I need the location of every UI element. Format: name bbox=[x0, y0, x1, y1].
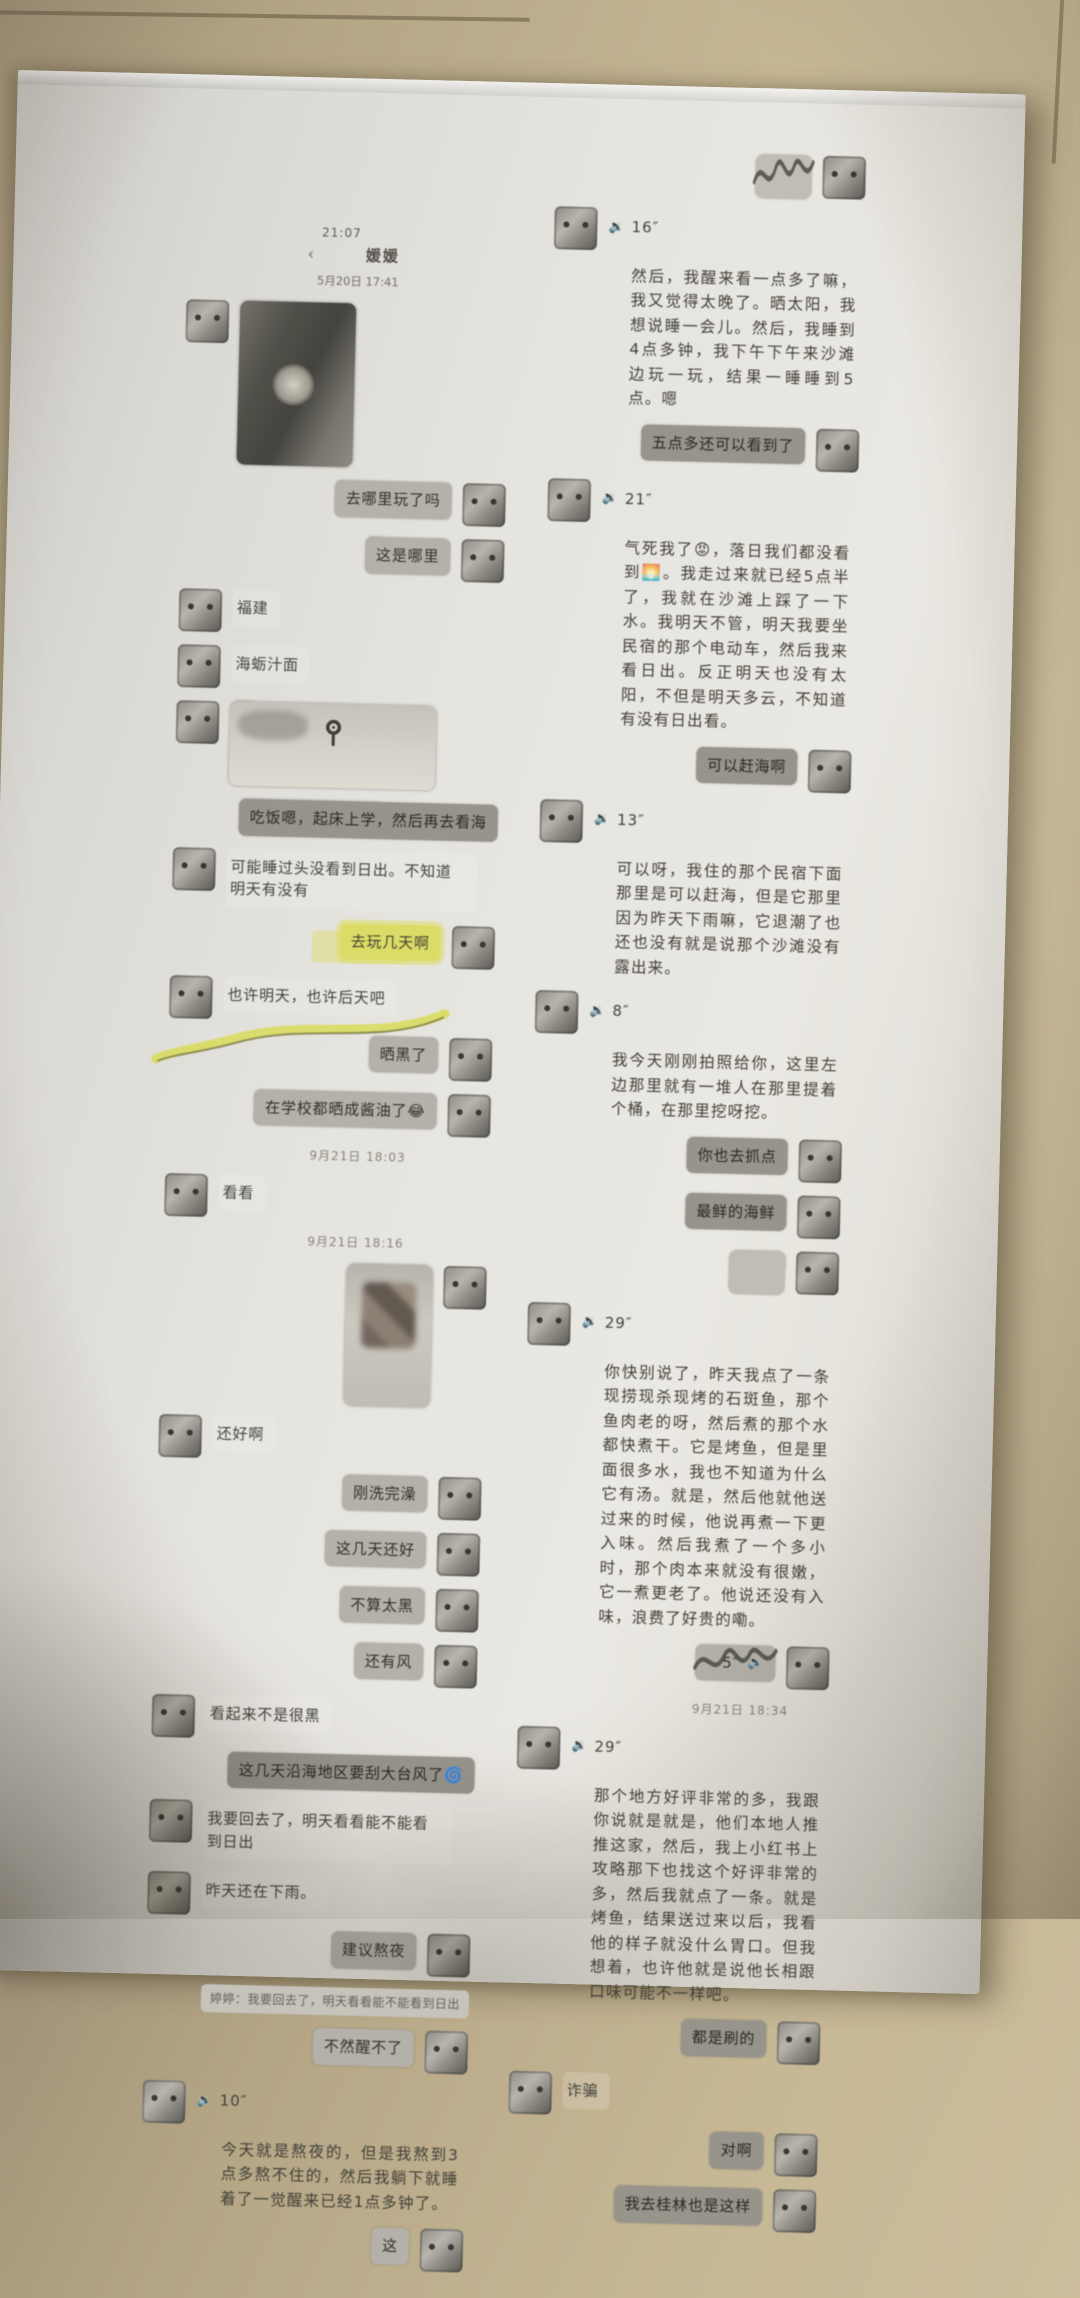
message-row: 不算太黑 bbox=[130, 1581, 493, 1633]
quoted-reply: 婷婷：我要回去了，明天看看能不能看到日出 bbox=[201, 1984, 470, 2019]
avatar bbox=[448, 1037, 492, 1081]
voice-duration: 8″ bbox=[612, 1002, 630, 1020]
voice-message-row: 5″🔉 bbox=[495, 1639, 844, 1690]
voice-icon: 🔉 bbox=[608, 219, 625, 234]
chat-bubble: 刚洗完澡 bbox=[342, 1474, 428, 1513]
avatar bbox=[435, 1588, 479, 1632]
chat-bubble: 可以赶海啊 bbox=[696, 747, 798, 786]
printed-paper: 21:07 ‹ 媛媛 5月20日 17:41 去哪里玩了吗这是哪里福建海蛎汁面吃… bbox=[0, 70, 1026, 1994]
voice-duration: 29″ bbox=[605, 1313, 633, 1332]
photo-of-printed-chat: { "colors": { "tile": "#c6b795", "paper"… bbox=[0, 0, 1080, 1919]
message-row: 不然醒不了 bbox=[119, 2023, 482, 2075]
voice-icon: 🔉 bbox=[594, 812, 611, 827]
chat-bubble: 看看 bbox=[218, 1174, 265, 1212]
chat-bubble: 看起来不是很黑 bbox=[205, 1695, 331, 1735]
chat-bubble: 还好啊 bbox=[212, 1415, 275, 1453]
voice-duration: 10″ bbox=[219, 2092, 247, 2111]
voice-icon: 🔉 bbox=[196, 2092, 213, 2107]
message-row: 晒黑了 bbox=[144, 1030, 507, 1082]
message-row: 诈骗 bbox=[484, 2070, 833, 2121]
message-row: 五点多还可以看到了 bbox=[525, 421, 874, 472]
voice-transcript: 那个地方好评非常的多，我跟你说就是就是，他们本地人推推这家，然后，我上小红书上攻… bbox=[589, 1784, 820, 2010]
message-row: 都是刷的 bbox=[486, 2014, 835, 2065]
blurred-face bbox=[361, 1281, 417, 1348]
avatar bbox=[822, 156, 866, 200]
voice-message-row: 🔉29″ bbox=[503, 1301, 852, 1352]
timestamp: 9月21日 18:34 bbox=[518, 1696, 828, 1721]
voice-message-row: 🔉16″ bbox=[530, 206, 879, 257]
message-row: 你也去抓点 bbox=[507, 1132, 856, 1183]
avatar bbox=[462, 483, 506, 527]
voice-message: 🔉21″ bbox=[601, 479, 653, 508]
message-row: 这是哪里 bbox=[156, 532, 519, 584]
avatar bbox=[434, 1644, 478, 1688]
chat-bubble: 你也去抓点 bbox=[686, 1136, 788, 1175]
voice-message: 5″🔉 bbox=[695, 1644, 776, 1682]
chat-bubble: 不算太黑 bbox=[339, 1586, 425, 1625]
message-row: 可以赶海啊 bbox=[517, 742, 866, 793]
voice-icon: 🔉 bbox=[602, 491, 619, 506]
message-row: 看起来不是很黑 bbox=[127, 1693, 490, 1745]
message-row: 还好啊 bbox=[134, 1413, 497, 1465]
avatar bbox=[176, 700, 220, 744]
voice-transcript-row: 你快别说了，昨天我点了一条现捞现杀现烤的石斑鱼，那个鱼肉老的呀，然后煮的那个水都… bbox=[496, 1357, 850, 1635]
photo-message-row bbox=[158, 299, 524, 472]
avatar bbox=[786, 1646, 830, 1690]
chat-bubble: 昨天还在下雨。 bbox=[201, 1872, 327, 1912]
timestamp: 9月21日 18:16 bbox=[163, 1228, 487, 1253]
chat-bubble: 在学校都晒成酱油了😂 bbox=[254, 1089, 437, 1130]
chat-bubble: 我要回去了，明天看看能不能看到日出 bbox=[202, 1800, 454, 1865]
avatar bbox=[808, 749, 852, 793]
scene: 21:07 ‹ 媛媛 5月20日 17:41 去哪里玩了吗这是哪里福建海蛎汁面吃… bbox=[0, 0, 1080, 1919]
chat-bubble: 这几天沿海地区要刮大台风了🌀 bbox=[227, 1751, 475, 1794]
message-row: 刚洗完澡 bbox=[133, 1469, 496, 1521]
voice-icon: 🔉 bbox=[747, 1654, 764, 1674]
timestamp-row: 9月21日 18:03 bbox=[141, 1142, 503, 1168]
timestamp: 9月21日 18:03 bbox=[165, 1142, 489, 1167]
avatar bbox=[172, 847, 216, 891]
voice-duration: 13″ bbox=[617, 811, 645, 830]
avatar bbox=[772, 2189, 816, 2233]
avatar bbox=[149, 1799, 193, 1843]
voice-message-row: 🔉8″ bbox=[511, 990, 860, 1041]
photo-message-row bbox=[136, 1258, 501, 1409]
message-row: 我去桂林也是这样 bbox=[481, 2182, 830, 2233]
chat-bubble: 去哪里玩了吗 bbox=[334, 480, 452, 519]
chat-bubble: 海蛎汁面 bbox=[231, 645, 310, 683]
chat-bubble: 吃饭嗯，起床上学，然后再去看海 bbox=[238, 799, 498, 842]
avatar bbox=[517, 1726, 561, 1770]
location-pin-icon bbox=[326, 720, 341, 735]
timestamp-row: 9月21日 18:34 bbox=[494, 1695, 842, 1720]
avatar bbox=[774, 2133, 818, 2177]
avatar bbox=[535, 990, 579, 1034]
message-row: 看看 bbox=[140, 1172, 503, 1224]
message-row: 这几天还好 bbox=[131, 1525, 494, 1577]
avatar bbox=[436, 1532, 480, 1576]
message-row: 在学校都晒成酱油了😂 bbox=[142, 1086, 505, 1138]
avatar bbox=[178, 588, 222, 632]
avatar bbox=[147, 1871, 191, 1915]
voice-duration: 29″ bbox=[594, 1738, 622, 1757]
avatar bbox=[795, 1251, 839, 1295]
left-chat-screenshot: 21:07 ‹ 媛媛 5月20日 17:41 去哪里玩了吗这是哪里福建海蛎汁面吃… bbox=[114, 162, 528, 2287]
avatar bbox=[169, 974, 213, 1018]
right-chat-screenshot: 🔉16″然后，我醒来看一点多了嘛，我又觉得太晚了。晒太阳，我想说睡一会儿。然后，… bbox=[481, 91, 881, 2247]
voice-duration: 5″ bbox=[722, 1652, 740, 1675]
voice-transcript-row: 气死我了😡，落日我们都没看到🌅。我走过来就已经5点半了，我就在沙滩上踩了一下水。… bbox=[518, 533, 871, 737]
voice-duration: 21″ bbox=[625, 490, 653, 509]
message-row: 去玩几天啊 bbox=[146, 918, 509, 970]
voice-transcript-row: 今天就是熬夜的，但是我熬到3点多熬不住的，然后我躺下就睡着了一觉醒来已经1点多钟… bbox=[116, 2135, 480, 2217]
message-row: 海蛎汁面 bbox=[153, 643, 516, 695]
avatar bbox=[447, 1093, 491, 1137]
avatar bbox=[443, 1265, 487, 1309]
voice-message-row: 🔉21″ bbox=[523, 477, 872, 528]
voice-message-row: 🔉10″ bbox=[118, 2079, 481, 2131]
avatar bbox=[164, 1172, 208, 1216]
chat-bubble: 建议熬夜 bbox=[331, 1931, 417, 1970]
chat-bubble: 这是哪里 bbox=[365, 537, 451, 576]
avatar bbox=[797, 1195, 841, 1239]
avatar bbox=[776, 2021, 820, 2065]
message-row: 可能睡过头没看到日出。不知道明天有没有 bbox=[148, 846, 511, 914]
avatar bbox=[461, 539, 505, 583]
avatar bbox=[419, 2229, 463, 2273]
sticker-message-row bbox=[504, 1244, 853, 1296]
voice-transcript: 今天就是熬夜的，但是我熬到3点多熬不住的，然后我躺下就睡着了一觉醒来已经1点多钟… bbox=[220, 2138, 460, 2217]
voice-icon: 🔉 bbox=[589, 1003, 606, 1018]
avatar bbox=[158, 1413, 202, 1457]
chat-title: 媛媛 bbox=[366, 245, 401, 267]
avatar bbox=[424, 2031, 468, 2075]
voice-transcript: 然后，我醒来看一点多了嘛，我又觉得太晚了。晒太阳，我想说睡一会儿。然后，我睡到4… bbox=[628, 264, 858, 416]
message-row: 这 bbox=[114, 2221, 477, 2273]
message-row: 福建 bbox=[154, 588, 517, 640]
avatar bbox=[427, 1934, 471, 1978]
message-row: 建议熬夜 bbox=[122, 1926, 485, 1978]
voice-duration: 16″ bbox=[631, 218, 659, 237]
chat-bubble: 去玩几天啊 bbox=[339, 923, 441, 962]
chat-bubble: 不然醒不了 bbox=[312, 2028, 414, 2067]
date-divider: 5月20日 17:41 bbox=[317, 272, 525, 293]
tile-grout-line bbox=[0, 10, 530, 22]
avatar bbox=[815, 429, 859, 473]
sticker-message-row bbox=[531, 149, 880, 201]
dark-photo-message bbox=[236, 301, 356, 468]
voice-message: 🔉10″ bbox=[196, 2081, 248, 2110]
message-row: 还有风 bbox=[129, 1637, 492, 1689]
avatar bbox=[554, 206, 598, 250]
message-row: 我要回去了，明天看看能不能看到日出 bbox=[124, 1798, 487, 1866]
voice-message: 🔉29″ bbox=[571, 1727, 623, 1756]
chat-bubble: 最鲜的海鲜 bbox=[685, 1192, 787, 1231]
message-row: 最鲜的海鲜 bbox=[506, 1188, 855, 1239]
back-arrow-icon: ‹ bbox=[307, 244, 314, 263]
avatar bbox=[438, 1476, 482, 1520]
message-row: 对啊 bbox=[483, 2126, 832, 2177]
avatar bbox=[177, 644, 221, 688]
avatar bbox=[142, 2080, 186, 2124]
location-message-row bbox=[151, 699, 515, 792]
avatar bbox=[185, 299, 229, 343]
message-row: 吃饭嗯，起床上学，然后再去看海 bbox=[149, 796, 512, 841]
message-row: 去哪里玩了吗 bbox=[157, 476, 520, 528]
voice-transcript-row: 然后，我醒来看一点多了嘛，我又觉得太晚了。晒太阳，我想说睡一会儿。然后，我睡到4… bbox=[526, 262, 877, 417]
voice-transcript-row: 那个地方好评非常的多，我跟你说就是就是，他们本地人推推这家，然后，我上小红书上攻… bbox=[487, 1781, 840, 2010]
status-bar-time: 21:07 bbox=[322, 225, 526, 244]
quoted-reply-row: 婷婷：我要回去了，明天看看能不能看到日出 bbox=[121, 1982, 484, 2019]
right-message-list: 🔉16″然后，我醒来看一点多了嘛，我又觉得太晚了。晒太阳，我想说睡一会儿。然后，… bbox=[481, 149, 880, 2234]
sticker-message bbox=[755, 154, 812, 199]
voice-transcript: 气死我了😡，落日我们都没看到🌅。我走过来就已经5点半了，我就在沙滩上踩了一下水。… bbox=[620, 536, 851, 737]
chat-header: 21:07 ‹ 媛媛 5月20日 17:41 bbox=[321, 225, 526, 293]
voice-message-row: 🔉13″ bbox=[515, 798, 864, 849]
sticker-message bbox=[728, 1249, 785, 1294]
avatar bbox=[547, 478, 591, 522]
voice-transcript-row: 我今天刚刚拍照给你，这里左边那里就有一堆人在那里提着个桶，在那里挖呀挖。 bbox=[509, 1046, 859, 1128]
timestamp-row: 9月21日 18:16 bbox=[139, 1228, 501, 1254]
message-row: 这几天沿海地区要刮大台风了🌀 bbox=[126, 1749, 489, 1794]
chat-bubble: 我去桂林也是这样 bbox=[613, 2186, 762, 2226]
title-row: ‹ 媛媛 bbox=[321, 243, 525, 269]
avatar bbox=[151, 1693, 195, 1737]
chat-bubble: 这几天还好 bbox=[325, 1529, 427, 1568]
chat-bubble: 可能睡过头没看到日出。不知道明天有没有 bbox=[226, 848, 478, 913]
message-row: 也许明天，也许后天吧 bbox=[145, 974, 508, 1026]
voice-message: 🔉29″ bbox=[581, 1303, 633, 1332]
voice-transcript: 你快别说了，昨天我点了一条现捞现杀现烤的石斑鱼，那个鱼肉老的呀，然后煮的那个水都… bbox=[598, 1359, 831, 1634]
voice-icon: 🔉 bbox=[581, 1314, 598, 1329]
voice-message: 🔉13″ bbox=[594, 800, 646, 829]
chat-bubble: 五点多还可以看到了 bbox=[640, 424, 805, 465]
chat-bubble: 诈骗 bbox=[562, 2072, 609, 2110]
voice-transcript: 可以呀，我住的那个民宿下面那里是可以赶海，但是它那里因为昨天下雨嘛，它退潮了也还… bbox=[614, 857, 843, 985]
avatar bbox=[508, 2071, 552, 2115]
voice-message-row: 🔉29″ bbox=[493, 1725, 842, 1776]
selfie-photo-message bbox=[343, 1263, 432, 1407]
voice-transcript-row: 可以呀，我住的那个民宿下面那里是可以赶海，但是它那里因为昨天下雨嘛，它退潮了也还… bbox=[512, 854, 863, 985]
chat-bubble: 都是刷的 bbox=[680, 2019, 766, 2058]
chat-bubble: 福建 bbox=[232, 589, 279, 627]
photo-highlight-spot bbox=[272, 363, 315, 406]
avatar bbox=[798, 1139, 842, 1183]
tile-grout-line bbox=[1052, 0, 1065, 164]
chat-bubble: 晒黑了 bbox=[368, 1035, 438, 1073]
map-location-message bbox=[229, 701, 437, 790]
voice-transcript: 我今天刚刚拍照给你，这里左边那里就有一堆人在那里提着个桶，在那里挖呀挖。 bbox=[610, 1048, 838, 1127]
chat-bubble: 也许明天，也许后天吧 bbox=[223, 976, 397, 1017]
chat-bubble: 还有风 bbox=[353, 1642, 423, 1680]
avatar bbox=[539, 799, 583, 843]
message-row: 昨天还在下雨。 bbox=[123, 1870, 486, 1922]
voice-message: 🔉16″ bbox=[608, 207, 660, 236]
avatar bbox=[527, 1301, 571, 1345]
left-message-list: 去哪里玩了吗这是哪里福建海蛎汁面吃饭嗯，起床上学，然后再去看海可能睡过头没看到日… bbox=[114, 299, 524, 2274]
voice-message: 🔉8″ bbox=[589, 991, 630, 1020]
pen-scribble bbox=[751, 146, 816, 208]
chat-bubble: 这 bbox=[371, 2228, 410, 2265]
avatar bbox=[451, 925, 495, 969]
map-feature bbox=[238, 710, 309, 742]
chat-bubble: 对啊 bbox=[709, 2132, 763, 2170]
voice-icon: 🔉 bbox=[571, 1739, 588, 1754]
